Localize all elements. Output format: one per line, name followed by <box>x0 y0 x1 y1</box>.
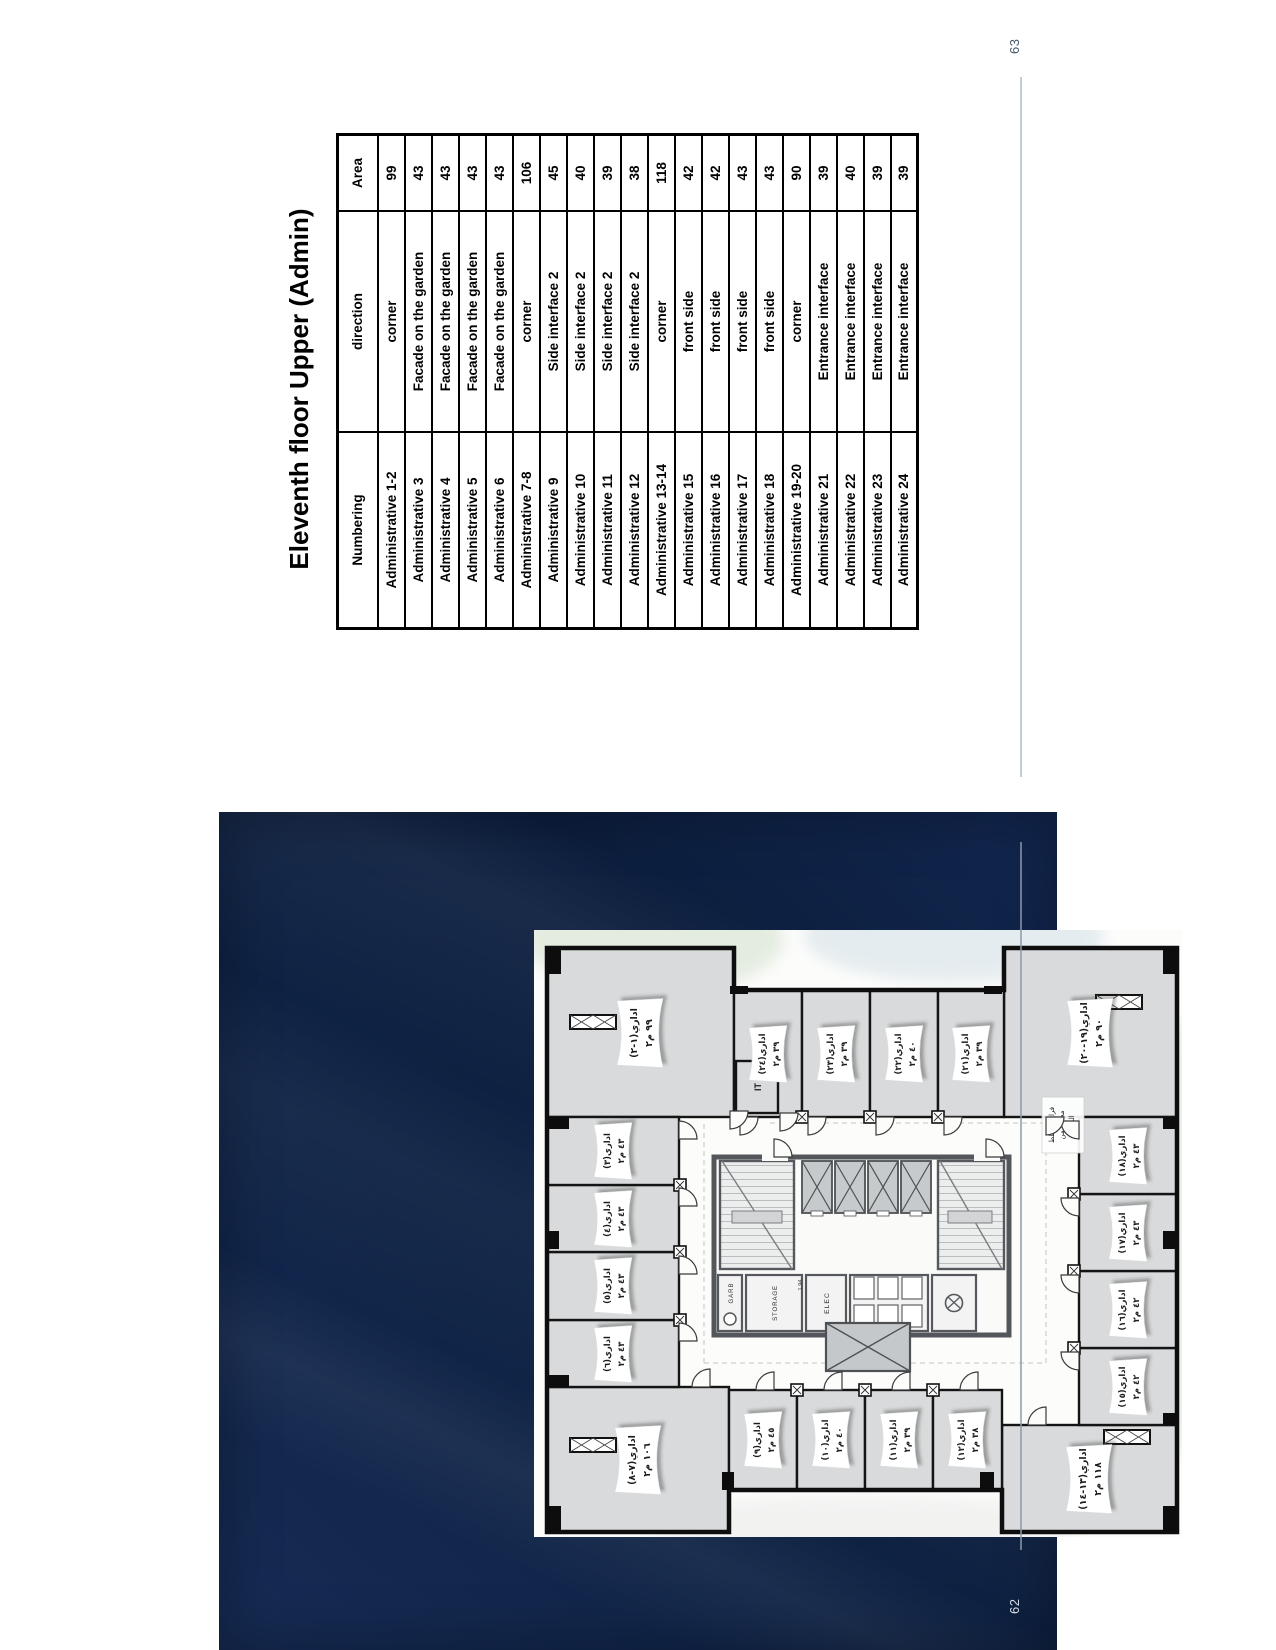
room-label: اداري(١-٢)٩٩ م٢ <box>617 995 667 1068</box>
table-row: Administrative 10Side interface 240 <box>567 135 594 629</box>
page-title: Eleventh floor Upper (Admin) <box>284 148 315 630</box>
svg-text:٤٢ م٢: ٤٢ م٢ <box>1132 1297 1142 1323</box>
table-row: Administrative 23Entrance interface39 <box>864 135 891 629</box>
svg-text:١٠٦ م٢: ١٠٦ م٢ <box>642 1443 653 1477</box>
svg-text:٤٣ م٢: ٤٣ م٢ <box>617 1341 627 1367</box>
table-cell: Facade on the garden <box>459 211 486 432</box>
table-header-row: Numbering direction Area <box>338 135 378 629</box>
svg-text:٤٢ م٢: ٤٢ م٢ <box>1132 1374 1142 1400</box>
table-row: Administrative 24Entrance interface39 <box>891 135 918 629</box>
svg-text:اداري(٢٢): اداري(٢٢) <box>894 1033 904 1074</box>
window-marker-icon <box>570 1438 616 1452</box>
table-cell: Administrative 13-14 <box>648 432 675 629</box>
svg-text:٣٩ م٢: ٣٩ م٢ <box>840 1041 850 1067</box>
svg-text:اداري(٢٤): اداري(٢٤) <box>758 1033 768 1074</box>
table-cell: Administrative 16 <box>702 432 729 629</box>
table-cell: 118 <box>648 135 675 212</box>
table-cell: corner <box>783 211 810 432</box>
table-row: Administrative 19-20corner90 <box>783 135 810 629</box>
table-cell: 39 <box>594 135 621 212</box>
svg-text:اداري(٦): اداري(٦) <box>603 1336 613 1372</box>
table-cell: Facade on the garden <box>432 211 459 432</box>
elec-label: ELEC <box>824 1292 831 1314</box>
svg-text:٤٣ م٢: ٤٣ م٢ <box>1132 1220 1142 1246</box>
header-numbering: Numbering <box>338 432 378 629</box>
table-cell: Administrative 7-8 <box>513 432 540 629</box>
table-row: Administrative 21Entrance interface39 <box>810 135 837 629</box>
column-nub <box>722 1472 734 1490</box>
table-row: Administrative 18front side43 <box>756 135 783 629</box>
svg-text:٤٣ م٢: ٤٣ م٢ <box>617 1138 627 1164</box>
table-cell: 43 <box>729 135 756 212</box>
svg-text:اداري(٤): اداري(٤) <box>603 1201 613 1237</box>
column-nub <box>547 1375 569 1387</box>
table-cell: 42 <box>702 135 729 212</box>
page-63-footer-rule <box>1020 77 1022 777</box>
table-row: Administrative 1-2corner99 <box>378 135 405 629</box>
service-elevator-icon <box>826 1323 910 1371</box>
column-nub <box>547 948 561 974</box>
svg-text:اداري(١٣-١٤): اداري(١٣-١٤) <box>1078 1448 1089 1509</box>
table-cell: Side interface 2 <box>621 211 648 432</box>
two-page-spread: GARB STORAGE ELEC 1.94 IT فراغ مخطط مخفي… <box>0 0 1276 1650</box>
room-label: اداري(١٩-٢٠)٩٠ م٢ <box>1067 995 1117 1068</box>
column-nub <box>730 986 748 994</box>
room-label: اداري(١٥)٤٢ م٢ <box>1109 1355 1151 1416</box>
svg-text:اداري(١٨): اداري(١٨) <box>1118 1135 1128 1176</box>
page-62-footer-rule <box>1020 842 1022 1550</box>
page-number-63: 63 <box>1007 39 1022 54</box>
table-cell: Administrative 24 <box>891 432 918 629</box>
svg-text:اداري(٥): اداري(٥) <box>603 1268 613 1304</box>
table-row: Administrative 22Entrance interface40 <box>837 135 864 629</box>
table-cell: 40 <box>567 135 594 212</box>
svg-text:اداري(١-٢): اداري(١-٢) <box>629 1008 640 1058</box>
table-cell: 43 <box>486 135 513 212</box>
table-cell: Administrative 17 <box>729 432 756 629</box>
column-marker-icon <box>791 1384 803 1396</box>
table-cell: Administrative 6 <box>486 432 513 629</box>
table-cell: Facade on the garden <box>486 211 513 432</box>
table-cell: front side <box>729 211 756 432</box>
table-cell: Administrative 4 <box>432 432 459 629</box>
table-cell: Entrance interface <box>837 211 864 432</box>
elevator-shaft-icon <box>868 1161 898 1216</box>
column-nub <box>547 1231 559 1249</box>
room-label: اداري(٢٤)٣٩ م٢ <box>749 1022 791 1083</box>
column-marker-icon <box>859 1384 871 1396</box>
svg-text:اداري(٧-٨): اداري(٧-٨) <box>627 1435 638 1485</box>
svg-text:٣٨ م٢: ٣٨ م٢ <box>971 1427 981 1453</box>
table-cell: Administrative 19-20 <box>783 432 810 629</box>
table-cell: 99 <box>378 135 405 212</box>
table-cell: Administrative 3 <box>405 432 432 629</box>
room-label: اداري(٦)٤٣ م٢ <box>594 1322 636 1383</box>
svg-text:٤٥ م٢: ٤٥ م٢ <box>767 1428 777 1453</box>
svg-text:اداري(١٩-٢٠): اداري(١٩-٢٠) <box>1079 1002 1090 1063</box>
column-nub <box>547 1117 569 1129</box>
dim-label: 1.94 <box>798 1280 804 1291</box>
room-label: اداري(١٨)٤٣ م٢ <box>1109 1124 1151 1185</box>
room-label: اداري(٩)٤٥ م٢ <box>744 1408 786 1469</box>
table-cell: 40 <box>837 135 864 212</box>
column-nub <box>1163 1117 1177 1129</box>
svg-text:اداري(٣): اداري(٣) <box>603 1133 613 1169</box>
room-label: اداري(١٦)٤٢ م٢ <box>1109 1278 1151 1339</box>
floorplan-navy-panel: GARB STORAGE ELEC 1.94 IT فراغ مخطط مخفي… <box>219 812 1057 1650</box>
table-cell: corner <box>513 211 540 432</box>
table-cell: Facade on the garden <box>405 211 432 432</box>
svg-text:٣٩ م٢: ٣٩ م٢ <box>772 1041 782 1067</box>
svg-text:٤٠ م٢: ٤٠ م٢ <box>908 1042 918 1067</box>
table-cell: 45 <box>540 135 567 212</box>
room-label: اداري(٥)٤٣ م٢ <box>594 1254 636 1315</box>
svg-text:٩٩ م٢: ٩٩ م٢ <box>644 1019 655 1047</box>
table-cell: corner <box>378 211 405 432</box>
column-nub <box>1163 948 1177 974</box>
table-cell: Side interface 2 <box>567 211 594 432</box>
table-cell: 43 <box>756 135 783 212</box>
table-row: Administrative 4Facade on the garden43 <box>432 135 459 629</box>
table-cell: 43 <box>432 135 459 212</box>
garb-label: GARB <box>729 1282 735 1303</box>
page-number-62: 62 <box>1007 1599 1022 1614</box>
table-cell: Entrance interface <box>891 211 918 432</box>
elevator-shaft-icon <box>835 1161 865 1216</box>
column-marker-icon <box>932 1111 944 1123</box>
table-cell: 42 <box>675 135 702 212</box>
storage-label: STORAGE <box>772 1285 779 1321</box>
table-row: Administrative 11Side interface 239 <box>594 135 621 629</box>
column-nub <box>1163 1506 1177 1532</box>
room-label: اداري(١٢)٣٨ م٢ <box>948 1408 990 1469</box>
svg-text:اداري(١٦): اداري(١٦) <box>1118 1289 1128 1330</box>
garbage-chute-icon <box>724 1313 736 1325</box>
table-cell: Side interface 2 <box>540 211 567 432</box>
table-row: Administrative 9Side interface 245 <box>540 135 567 629</box>
table-row: Administrative 5Facade on the garden43 <box>459 135 486 629</box>
table-row: Administrative 7-8corner106 <box>513 135 540 629</box>
svg-text:اداري(١٥): اداري(١٥) <box>1118 1366 1128 1407</box>
table-cell: 90 <box>783 135 810 212</box>
table-cell: 43 <box>405 135 432 212</box>
floor-plan-drawing: GARB STORAGE ELEC 1.94 IT فراغ مخطط مخفي… <box>534 930 1182 1537</box>
room-label: اداري(١٣-١٤)١١٨ م٢ <box>1066 1441 1116 1514</box>
room-label: اداري(١١)٣٩ م٢ <box>880 1408 922 1469</box>
svg-text:اداري(٢٣): اداري(٢٣) <box>826 1033 836 1074</box>
window-marker-icon <box>570 1015 616 1029</box>
column-nub <box>547 1506 561 1532</box>
table-cell: Side interface 2 <box>594 211 621 432</box>
column-nub <box>984 986 1002 994</box>
svg-text:٣٩ م٢: ٣٩ م٢ <box>975 1041 985 1067</box>
table-row: Administrative 6Facade on the garden43 <box>486 135 513 629</box>
table-cell: front side <box>702 211 729 432</box>
room-label: اداري(٢١)٣٩ م٢ <box>952 1022 994 1083</box>
svg-text:اداري(١٧): اداري(١٧) <box>1118 1212 1128 1253</box>
table-cell: Administrative 22 <box>837 432 864 629</box>
table-cell: Entrance interface <box>864 211 891 432</box>
table-cell: front side <box>756 211 783 432</box>
table-cell: Administrative 9 <box>540 432 567 629</box>
svg-text:اداري(٩): اداري(٩) <box>753 1422 763 1458</box>
header-direction: direction <box>338 211 378 432</box>
table-cell: Entrance interface <box>810 211 837 432</box>
table-cell: 39 <box>891 135 918 212</box>
table-cell: Administrative 12 <box>621 432 648 629</box>
room-label: اداري(١٠)٤٠ م٢ <box>812 1408 854 1469</box>
column-nub <box>1163 1231 1175 1249</box>
svg-text:٤٣ م٢: ٤٣ م٢ <box>1132 1143 1142 1169</box>
column-nub <box>1163 1413 1177 1425</box>
elevator-shaft-icon <box>802 1161 832 1216</box>
svg-text:اداري(١٢): اداري(١٢) <box>957 1419 967 1460</box>
svg-text:اداري(١٠): اداري(١٠) <box>821 1419 831 1460</box>
room-label: اداري(٣)٤٣ م٢ <box>594 1119 636 1180</box>
table-cell: Administrative 10 <box>567 432 594 629</box>
svg-text:اداري(٢١): اداري(٢١) <box>961 1033 971 1074</box>
header-area: Area <box>338 135 378 212</box>
table-cell: Administrative 23 <box>864 432 891 629</box>
svg-text:١١٨ م٢: ١١٨ م٢ <box>1093 1462 1104 1496</box>
table-row: Administrative 12Side interface 238 <box>621 135 648 629</box>
svg-text:٣٩ م٢: ٣٩ م٢ <box>903 1427 913 1453</box>
table-cell: 39 <box>810 135 837 212</box>
column-marker-icon <box>864 1111 876 1123</box>
room-label: اداري(٧-٨)١٠٦ م٢ <box>615 1422 665 1495</box>
room-label: اداري(١٧)٤٣ م٢ <box>1109 1201 1151 1262</box>
scanned-document-page: GARB STORAGE ELEC 1.94 IT فراغ مخطط مخفي… <box>0 0 1276 1650</box>
elevator-shaft-icon <box>901 1161 931 1216</box>
room-label: اداري(٤)٤٣ م٢ <box>594 1187 636 1248</box>
table-row: Administrative 3Facade on the garden43 <box>405 135 432 629</box>
table-row: Administrative 16front side42 <box>702 135 729 629</box>
table-cell: Administrative 21 <box>810 432 837 629</box>
table-cell: 38 <box>621 135 648 212</box>
table-cell: Administrative 1-2 <box>378 432 405 629</box>
table-cell: Administrative 11 <box>594 432 621 629</box>
table-cell: Administrative 15 <box>675 432 702 629</box>
it-label: IT <box>753 1082 763 1091</box>
table-row: Administrative 13-14corner118 <box>648 135 675 629</box>
table-cell: 39 <box>864 135 891 212</box>
table-cell: 106 <box>513 135 540 212</box>
table-cell: front side <box>675 211 702 432</box>
svg-text:٤٠ م٢: ٤٠ م٢ <box>835 1428 845 1453</box>
table-cell: Administrative 18 <box>756 432 783 629</box>
table-row: Administrative 15front side42 <box>675 135 702 629</box>
table-cell: 43 <box>459 135 486 212</box>
area-schedule-table: Numbering direction Area Administrative … <box>336 133 919 630</box>
svg-text:٤٣ م٢: ٤٣ م٢ <box>617 1206 627 1232</box>
room-label: اداري(٢٣)٣٩ م٢ <box>817 1022 859 1083</box>
column-marker-icon <box>927 1384 939 1396</box>
column-nub <box>980 1472 994 1490</box>
table-cell: corner <box>648 211 675 432</box>
svg-text:٤٣ م٢: ٤٣ م٢ <box>617 1273 627 1299</box>
table-row: Administrative 17front side43 <box>729 135 756 629</box>
table-cell: Administrative 5 <box>459 432 486 629</box>
svg-text:٩٠ م٢: ٩٠ م٢ <box>1094 1019 1105 1047</box>
svg-text:اداري(١١): اداري(١١) <box>889 1419 899 1460</box>
room-label: اداري(٢٢)٤٠ م٢ <box>885 1022 927 1083</box>
